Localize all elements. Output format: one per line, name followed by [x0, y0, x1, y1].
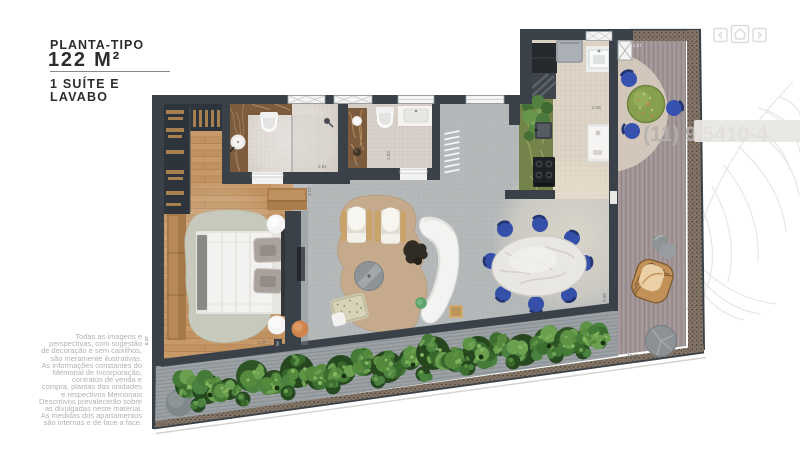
svg-text:0.98: 0.98 [602, 293, 607, 302]
svg-text:2.91: 2.91 [318, 164, 327, 169]
svg-text:(11) 9.5410-4: (11) 9.5410-4 [643, 123, 768, 146]
svg-text:2.38: 2.38 [592, 105, 601, 110]
svg-text:1.27: 1.27 [633, 43, 642, 48]
svg-text:13.31: 13.31 [627, 353, 639, 358]
svg-text:4.37: 4.37 [307, 187, 312, 196]
svg-text:3: 3 [276, 342, 279, 348]
svg-text:6.47: 6.47 [144, 336, 149, 345]
svg-text:2.16: 2.16 [350, 161, 359, 166]
svg-text:1.60: 1.60 [386, 151, 391, 160]
